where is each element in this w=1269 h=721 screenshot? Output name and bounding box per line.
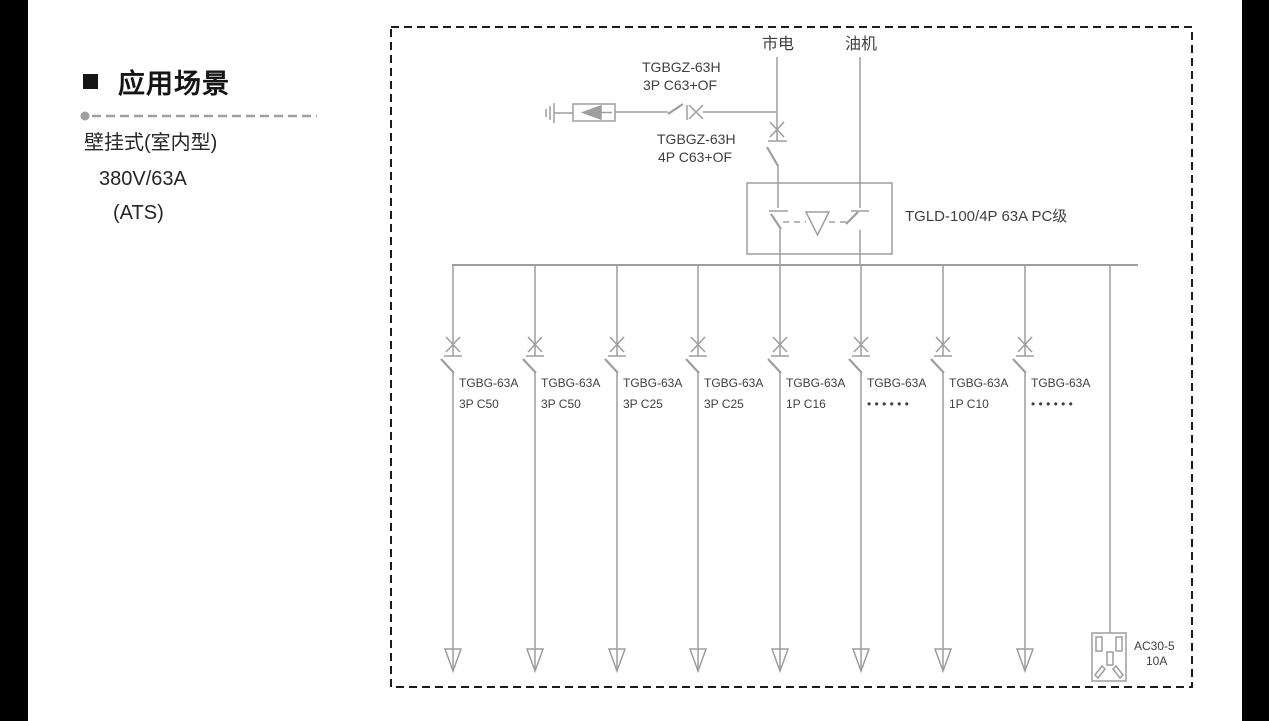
branch-label-model: TGBG-63A bbox=[1031, 377, 1090, 391]
branch-label-model: TGBG-63A bbox=[867, 377, 926, 391]
branch-label-spec: 1P C10 bbox=[949, 398, 989, 412]
ground-icon bbox=[546, 103, 554, 123]
branch-breaker-icon bbox=[523, 337, 544, 373]
generator-label: 油机 bbox=[845, 36, 877, 54]
branch-label-model: TGBG-63A bbox=[949, 377, 1008, 391]
branch-label-spec: 3P C25 bbox=[704, 398, 744, 412]
transfer-triangle-icon bbox=[806, 212, 829, 235]
branch-label-spec: 3P C50 bbox=[541, 398, 581, 412]
socket-feeder bbox=[1092, 266, 1126, 681]
branch-label-model: TGBG-63A bbox=[786, 377, 845, 391]
branch-breaker-icon bbox=[686, 337, 707, 373]
spd-breaker-spec: 3P C63+OF bbox=[643, 77, 717, 93]
main-breaker-spec: 4P C63+OF bbox=[658, 149, 732, 165]
breaker-cross-icon bbox=[689, 105, 703, 119]
branch-label-spec: 3P C50 bbox=[459, 398, 499, 412]
breaker-blade-icon bbox=[668, 104, 683, 114]
branch-label-spec: • • • • • • bbox=[867, 398, 909, 412]
divider-dot-icon bbox=[81, 112, 90, 121]
main-breaker-model: TGBGZ-63H bbox=[657, 131, 736, 147]
branch-feeders bbox=[441, 266, 1034, 671]
branch-breaker-icon bbox=[1013, 337, 1034, 373]
branch-breaker-icon bbox=[849, 337, 870, 373]
ats-box bbox=[747, 183, 892, 254]
ats-switch bbox=[747, 183, 892, 266]
mains-label: 市电 bbox=[762, 36, 794, 54]
single-line-diagram bbox=[0, 0, 1269, 721]
branch-label-spec: 1P C16 bbox=[786, 398, 826, 412]
branch-label-model: TGBG-63A bbox=[704, 377, 763, 391]
branch-label-model: TGBG-63A bbox=[459, 377, 518, 391]
ats-left-blade-icon bbox=[771, 214, 781, 229]
spd-breaker-model: TGBGZ-63H bbox=[642, 59, 721, 75]
spd-arrow-icon bbox=[583, 106, 601, 119]
branch-breaker-icon bbox=[441, 337, 462, 373]
socket-model-label: AC30-5 bbox=[1134, 640, 1175, 654]
ats-right-blade-icon bbox=[846, 212, 858, 224]
branch-label-spec: 3P C25 bbox=[623, 398, 663, 412]
branch-label-model: TGBG-63A bbox=[623, 377, 682, 391]
branch-breaker-icon bbox=[768, 337, 789, 373]
diagram-dashed-border bbox=[391, 27, 1192, 687]
spd-branch bbox=[546, 103, 776, 123]
sidebar-divider bbox=[81, 112, 318, 121]
mains-line bbox=[767, 57, 787, 208]
ats-label: TGLD-100/4P 63A PC级 bbox=[905, 208, 1067, 225]
breaker-blade-icon bbox=[767, 147, 778, 166]
socket-icon bbox=[1092, 633, 1126, 681]
socket-rating-label: 10A bbox=[1146, 655, 1167, 669]
branch-breaker-icon bbox=[931, 337, 952, 373]
branch-label-spec: • • • • • • bbox=[1031, 398, 1073, 412]
branch-label-model: TGBG-63A bbox=[541, 377, 600, 391]
branch-breaker-icon bbox=[605, 337, 626, 373]
